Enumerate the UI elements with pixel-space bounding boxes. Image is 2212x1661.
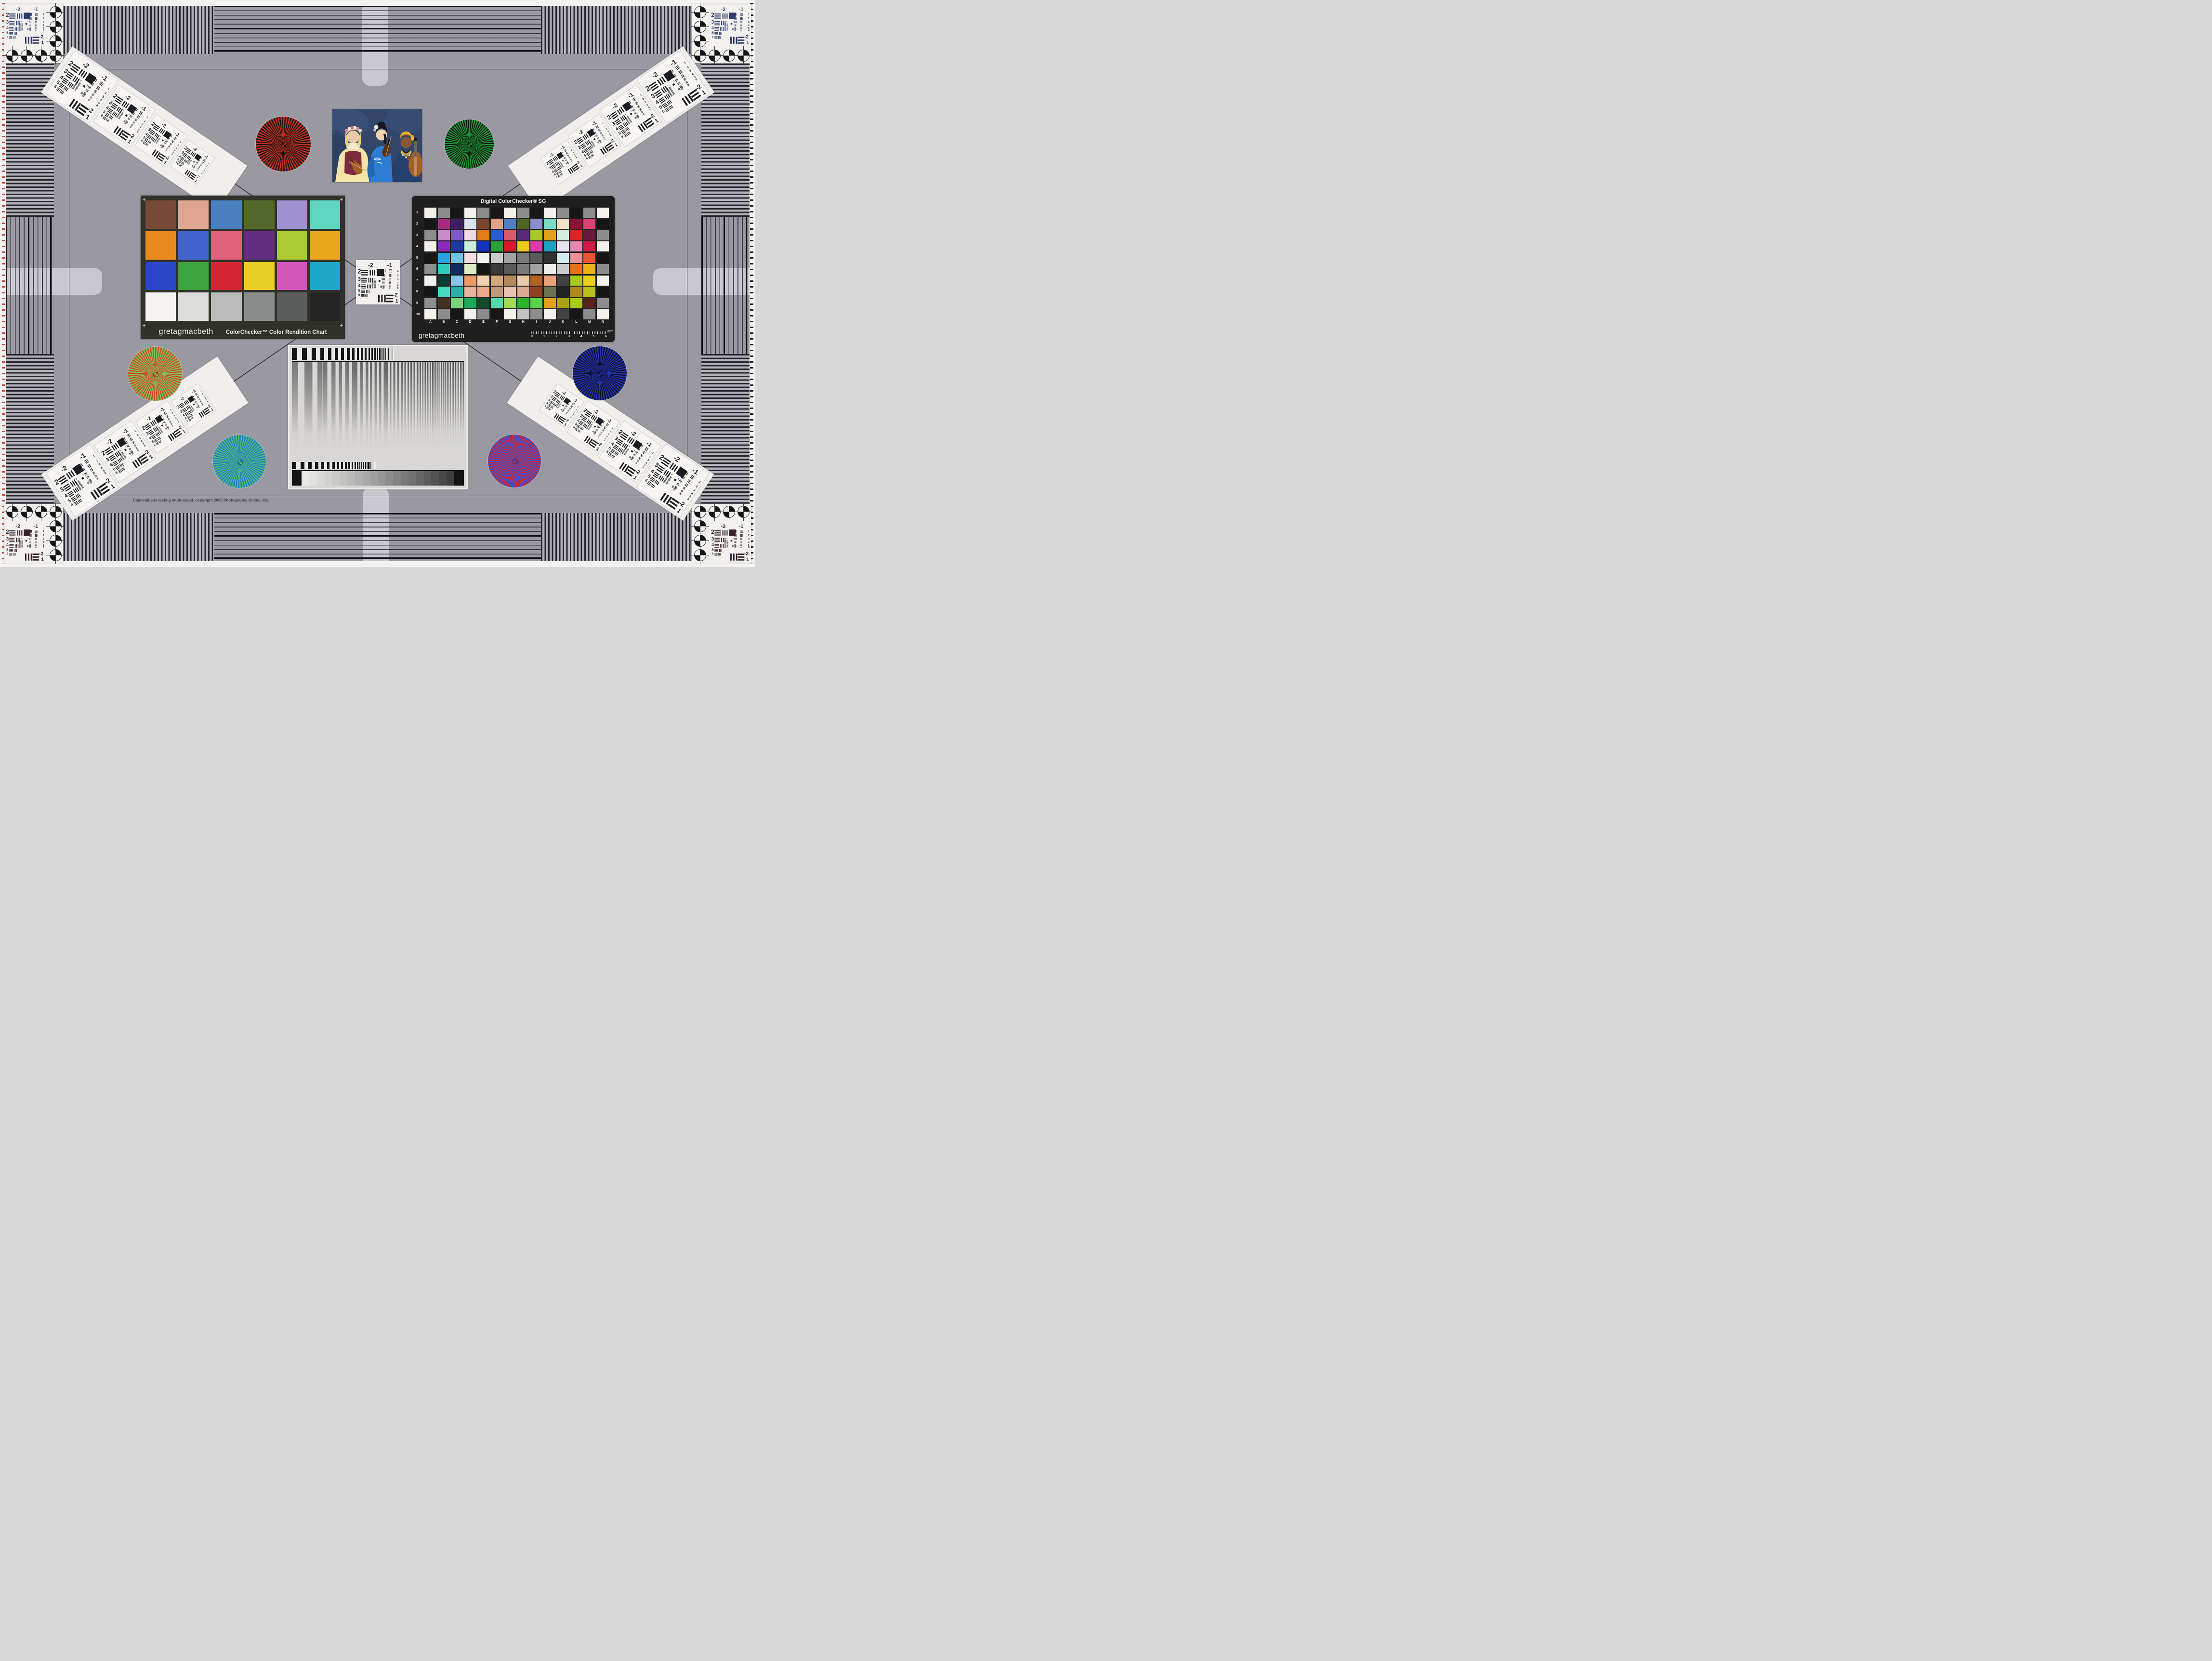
color-patch [277,262,307,290]
svg-text:-2: -2 [124,93,132,102]
svg-text:-2: -2 [86,105,95,115]
svg-text:2: 2 [609,430,612,433]
svg-text:6: 6 [712,553,714,556]
svg-text:3: 3 [607,433,610,435]
siemens-star-red-blue [488,435,541,488]
sg-color-patch [597,287,609,297]
sg-color-patch [477,241,489,251]
svg-text:6: 6 [644,477,649,483]
svg-text:-2: -2 [39,552,43,557]
svg-text:4: 4 [552,170,555,174]
center-usaf-target: -2-123456123456-2101 [356,260,400,304]
svg-text:0: 0 [558,160,560,162]
svg-text:1: 1 [41,557,44,563]
svg-text:2: 2 [6,12,9,18]
quadrant-circle-mark [735,503,751,520]
svg-text:6: 6 [661,108,666,114]
sg-color-patch [464,309,476,319]
svg-text:1: 1 [614,142,619,147]
svg-text:-2: -2 [179,395,185,402]
sg-color-patch [544,264,556,274]
sg-color-patch [451,241,463,251]
svg-text:1: 1 [126,139,132,145]
svg-text:-2: -2 [561,390,567,396]
sg-color-patch [530,253,542,263]
svg-text:-2: -2 [105,437,114,446]
corner-card-top-left: -2-123456123456-2101 [4,4,63,63]
sg-color-patch [504,208,516,218]
color-patch [145,200,176,229]
svg-text:2: 2 [136,434,139,437]
svg-text:1: 1 [210,407,214,412]
svg-text:6: 6 [70,502,75,507]
sg-color-patch [557,208,569,218]
svg-text:-1: -1 [669,57,678,67]
svg-text:6: 6 [576,156,578,159]
svg-text:1: 1 [128,114,130,116]
sg-color-patch [464,241,476,251]
corner-card-top-right: -2-123456123456-2101 [692,4,751,63]
svg-text:-2: -2 [393,292,398,298]
svg-text:6: 6 [95,104,99,107]
svg-text:1: 1 [595,446,600,451]
sg-color-patch [491,298,503,308]
sg-color-patch [464,230,476,240]
divider-line [292,361,464,362]
sg-color-patch [583,298,595,308]
svg-text:0: 0 [191,158,193,159]
sg-color-patch [544,219,556,229]
color-patch [211,231,241,260]
svg-text:-2: -2 [81,60,91,70]
svg-text:3: 3 [646,459,649,462]
colorchecker-brand: gretagmacbeth [159,328,213,336]
svg-text:-2: -2 [721,524,725,529]
corner-usaf-target: -2-123456123456-2101 [4,521,46,563]
svg-text:2: 2 [357,268,361,275]
svg-text:4: 4 [711,542,714,547]
svg-text:5: 5 [6,31,9,35]
color-patch [244,231,275,260]
svg-text:-1: -1 [191,388,197,394]
sg-color-patch [570,230,582,240]
sg-color-patch [491,287,503,297]
siemens-star-red-green [128,347,182,401]
sg-color-patch [477,219,489,229]
sg-color-patch [597,208,609,218]
svg-text:6: 6 [7,36,9,39]
sg-color-patch [477,208,489,218]
svg-text:6: 6 [43,546,44,549]
svg-text:2: 2 [43,534,44,537]
sg-color-patch [491,230,503,240]
color-patch [145,292,176,321]
svg-text:1: 1 [395,298,398,304]
svg-text:1: 1 [161,422,163,424]
svg-text:6: 6 [609,134,612,137]
svg-text:2: 2 [604,125,606,128]
svg-text:3: 3 [606,128,608,131]
sg-color-patch [544,253,556,263]
sg-color-patch [477,253,489,263]
corner-card-bottom-left: -2-123456123456-2101 [4,504,63,563]
sg-color-patch [530,298,542,308]
siemens-star-navy [573,346,627,400]
svg-text:-1: -1 [645,440,653,448]
svg-text:2: 2 [397,274,398,277]
color-patch [211,292,241,321]
sg-color-patch [544,298,556,308]
sg-color-patch [530,230,542,240]
svg-text:6: 6 [712,36,714,39]
contrast-fade-overlay [292,362,464,461]
color-patch [277,231,307,260]
svg-text:2: 2 [95,459,99,463]
colorchecker-sg-chart: Digital ColorChecker® SG 12345678910 ABC… [412,196,615,342]
svg-text:1: 1 [92,455,96,459]
sg-color-patch [557,298,569,308]
svg-text:1: 1 [134,430,137,433]
sg-color-patch [438,298,450,308]
sg-color-patch [557,309,569,319]
svg-text:3: 3 [358,277,361,282]
svg-text:3: 3 [711,20,714,25]
color-patch [244,262,275,290]
svg-text:-2: -2 [611,102,619,110]
color-patch [178,262,209,290]
sg-color-patch [544,230,556,240]
svg-text:3: 3 [6,537,9,542]
frequency-sweep-chart [288,345,468,489]
svg-text:1: 1 [733,21,734,23]
svg-text:-2: -2 [164,155,171,161]
sg-color-patch [424,241,436,251]
sg-color-patch [451,287,463,297]
svg-text:1: 1 [631,110,632,112]
svg-text:3: 3 [43,538,44,541]
svg-text:5: 5 [358,289,361,293]
svg-text:1: 1 [746,40,749,46]
svg-text:3: 3 [141,123,144,126]
svg-text:1: 1 [43,13,44,16]
sg-color-patch [517,298,529,308]
sg-color-patch [597,230,609,240]
svg-text:1: 1 [593,135,595,137]
color-patch [244,200,275,229]
svg-text:1: 1 [82,473,84,476]
sg-color-patch [438,309,450,319]
svg-text:2: 2 [711,12,714,18]
svg-text:0: 0 [671,473,673,476]
sg-color-patch [438,241,450,251]
svg-text:-2: -2 [59,464,68,474]
svg-text:0: 0 [123,110,125,112]
svg-text:6: 6 [570,416,572,419]
ruler-numbers: 0123456 [531,335,607,338]
sg-color-patch [530,287,542,297]
sg-title: Digital ColorChecker® SG [412,198,615,204]
svg-text:3: 3 [711,537,714,542]
sg-color-patch [491,276,503,286]
sg-color-patch [438,287,450,297]
svg-text:6: 6 [586,157,589,160]
sg-color-patch [464,253,476,263]
sg-color-patch [530,264,542,274]
registration-plus-icon: + [143,198,145,203]
colorchecker-title: ColorChecker™ Color Rendition Chart [226,330,327,335]
quadrant-circle-mark [47,547,64,563]
sg-color-patch [583,287,595,297]
sg-color-patch [438,208,450,218]
svg-text:-2: -2 [15,7,20,13]
svg-text:4: 4 [711,26,714,30]
svg-text:5: 5 [583,154,587,158]
svg-text:2: 2 [649,456,652,459]
svg-text:4: 4 [397,281,399,284]
svg-text:2: 2 [43,17,44,20]
svg-text:1: 1 [746,557,749,563]
sg-color-patch [464,264,476,274]
sg-color-patch [491,208,503,218]
sg-color-patch [451,230,463,240]
sg-color-patch [504,241,516,251]
svg-text:6: 6 [104,472,107,475]
sg-color-patch [438,276,450,286]
svg-text:1: 1 [169,408,171,411]
sg-color-patch [491,309,503,319]
svg-text:-1: -1 [387,262,393,269]
sg-color-patch [504,264,516,274]
sg-color-patch [464,298,476,308]
svg-text:6: 6 [115,471,118,475]
siemens-star-green [445,119,494,169]
sg-mm-ruler: 0123456 mm [531,331,607,338]
sg-color-patch [583,253,595,263]
sg-color-patch [438,253,450,263]
svg-text:0: 0 [21,21,22,23]
svg-text:3: 3 [147,126,152,132]
svg-text:-1: -1 [560,145,566,151]
svg-text:-1: -1 [33,7,38,13]
svg-text:1: 1 [164,139,166,141]
svg-text:1: 1 [397,270,398,273]
svg-text:6: 6 [171,153,173,156]
svg-text:1: 1 [634,449,636,451]
svg-text:1: 1 [568,146,571,149]
quadrant-circle-mark [47,47,64,64]
sg-color-patch [583,230,595,240]
svg-text:1: 1 [611,427,614,430]
siemens-star-red [256,117,311,171]
sg-color-patch [517,309,529,319]
svg-text:3: 3 [43,21,44,24]
bar-sweep-bottom [292,462,464,469]
color-patch [310,262,340,290]
sg-color-patch [597,298,609,308]
sg-color-patch [517,241,529,251]
svg-text:-2: -2 [160,122,167,129]
svg-text:1: 1 [601,122,604,125]
svg-text:0: 0 [189,404,191,406]
sg-color-patch [424,298,436,308]
sg-color-patch [477,276,489,286]
color-patch [277,292,307,321]
sg-color-patch [464,276,476,286]
svg-text:1: 1 [41,40,44,46]
sg-color-patch [544,309,556,319]
svg-text:-2: -2 [629,429,637,438]
sg-color-patch [477,298,489,308]
svg-text:1: 1 [596,425,598,427]
sg-color-patch [424,287,436,297]
sg-color-patch [570,298,582,308]
sg-color-patch [530,309,542,319]
svg-text:0: 0 [726,21,727,23]
sg-color-patch [570,264,582,274]
svg-text:3: 3 [748,21,750,24]
registration-plus-icon: + [340,323,343,329]
svg-text:2: 2 [686,65,690,69]
svg-text:1: 1 [27,538,28,540]
corner-usaf-target: -2-123456123456-2101 [710,521,751,563]
sg-color-patch [504,253,516,263]
sg-color-patch [504,276,516,286]
svg-text:2: 2 [177,144,180,147]
svg-text:6: 6 [43,29,44,32]
sg-color-patch [557,287,569,297]
svg-text:6: 6 [748,29,750,32]
svg-text:6: 6 [620,135,624,139]
sg-color-patch [583,276,595,286]
color-patch [277,200,307,229]
sg-color-patch [570,287,582,297]
svg-text:3: 3 [579,413,584,419]
sg-color-patch [597,241,609,251]
sg-color-patch [477,230,489,240]
svg-text:1: 1 [700,89,707,96]
svg-text:1: 1 [577,406,579,409]
sg-color-patch [504,219,516,229]
svg-text:-1: -1 [738,7,743,13]
color-patch [145,262,176,290]
camera-lens-test-target: -2-123456123456-2101 -2-123456123456-210… [0,0,755,567]
svg-text:2: 2 [711,528,714,535]
svg-text:5: 5 [151,440,155,444]
color-patch [310,231,340,260]
svg-text:-2: -2 [744,35,749,40]
svg-text:2: 2 [748,534,750,537]
sg-color-patch [424,230,436,240]
colorchecker-caption: gretagmacbeth ColorChecker™ Color Rendit… [141,328,345,336]
sg-patch-grid [424,208,609,319]
sg-color-patch [557,241,569,251]
registration-plus-icon: + [143,323,145,329]
svg-text:6: 6 [153,443,157,447]
svg-text:2: 2 [6,528,9,535]
corner-usaf-target: -2-123456123456-2101 [4,4,46,46]
svg-text:6: 6 [642,466,645,470]
sg-color-patch [544,287,556,297]
sg-color-patch [544,276,556,286]
sg-color-patch [477,309,489,319]
sg-color-patch [424,208,436,218]
svg-text:3: 3 [644,101,647,104]
sg-color-patch [557,264,569,274]
photo-three-musicians [332,109,422,182]
svg-text:0: 0 [726,538,727,540]
svg-text:-2: -2 [672,454,681,463]
sg-color-patch [517,253,529,263]
sg-color-patch [477,287,489,297]
color-patch [244,292,275,321]
sg-color-patch [424,264,436,274]
svg-text:-2: -2 [368,262,373,269]
svg-text:4: 4 [358,283,361,289]
sg-color-patch [570,208,582,218]
svg-text:1: 1 [675,507,682,514]
svg-text:1: 1 [84,113,91,121]
colorchecker-classic-chart: gretagmacbeth ColorChecker™ Color Rendit… [141,196,345,339]
svg-text:1: 1 [109,482,116,490]
sg-color-patch [530,276,542,286]
sg-color-patch [451,276,463,286]
svg-text:3: 3 [6,20,9,25]
svg-text:6: 6 [201,172,203,175]
svg-text:1: 1 [684,61,687,65]
svg-text:2: 2 [695,485,698,488]
svg-text:-1: -1 [203,154,209,160]
sg-color-patch [424,253,436,263]
copyright-text: Camera/Lens testing multi-target, copyri… [133,498,269,502]
svg-text:2: 2 [171,411,174,414]
siemens-star-blue-green [213,435,266,488]
svg-text:6: 6 [207,400,209,403]
sg-color-patch [530,241,542,251]
registration-plus-icon: + [340,198,343,203]
svg-text:4: 4 [182,414,185,418]
svg-text:-2: -2 [578,129,584,136]
svg-text:3: 3 [98,463,102,467]
svg-text:1: 1 [208,162,211,165]
sg-color-patch [583,208,595,218]
colorchecker-patch-grid [145,200,340,321]
svg-text:-1: -1 [140,104,148,113]
sg-color-patch [451,309,463,319]
svg-text:0: 0 [628,446,630,448]
sg-color-patch [517,276,529,286]
svg-text:1: 1 [748,530,750,533]
svg-text:6: 6 [144,444,146,448]
sg-color-patch [530,208,542,218]
svg-text:3: 3 [692,488,696,492]
svg-text:0: 0 [159,135,161,137]
sg-color-patch [424,309,436,319]
sg-color-patch [424,219,436,229]
sg-color-patch [557,253,569,263]
svg-text:0: 0 [374,278,375,280]
svg-text:3: 3 [173,414,176,417]
color-patch [211,200,241,229]
svg-text:1: 1 [86,84,89,87]
svg-text:0: 0 [592,422,593,424]
svg-text:6: 6 [358,293,360,297]
quadrant-circle-mark [692,547,708,563]
svg-text:3: 3 [175,146,178,149]
svg-text:2: 2 [143,120,146,123]
svg-text:-2: -2 [597,441,603,447]
svg-text:-2: -2 [549,152,554,158]
svg-text:1: 1 [381,278,382,280]
